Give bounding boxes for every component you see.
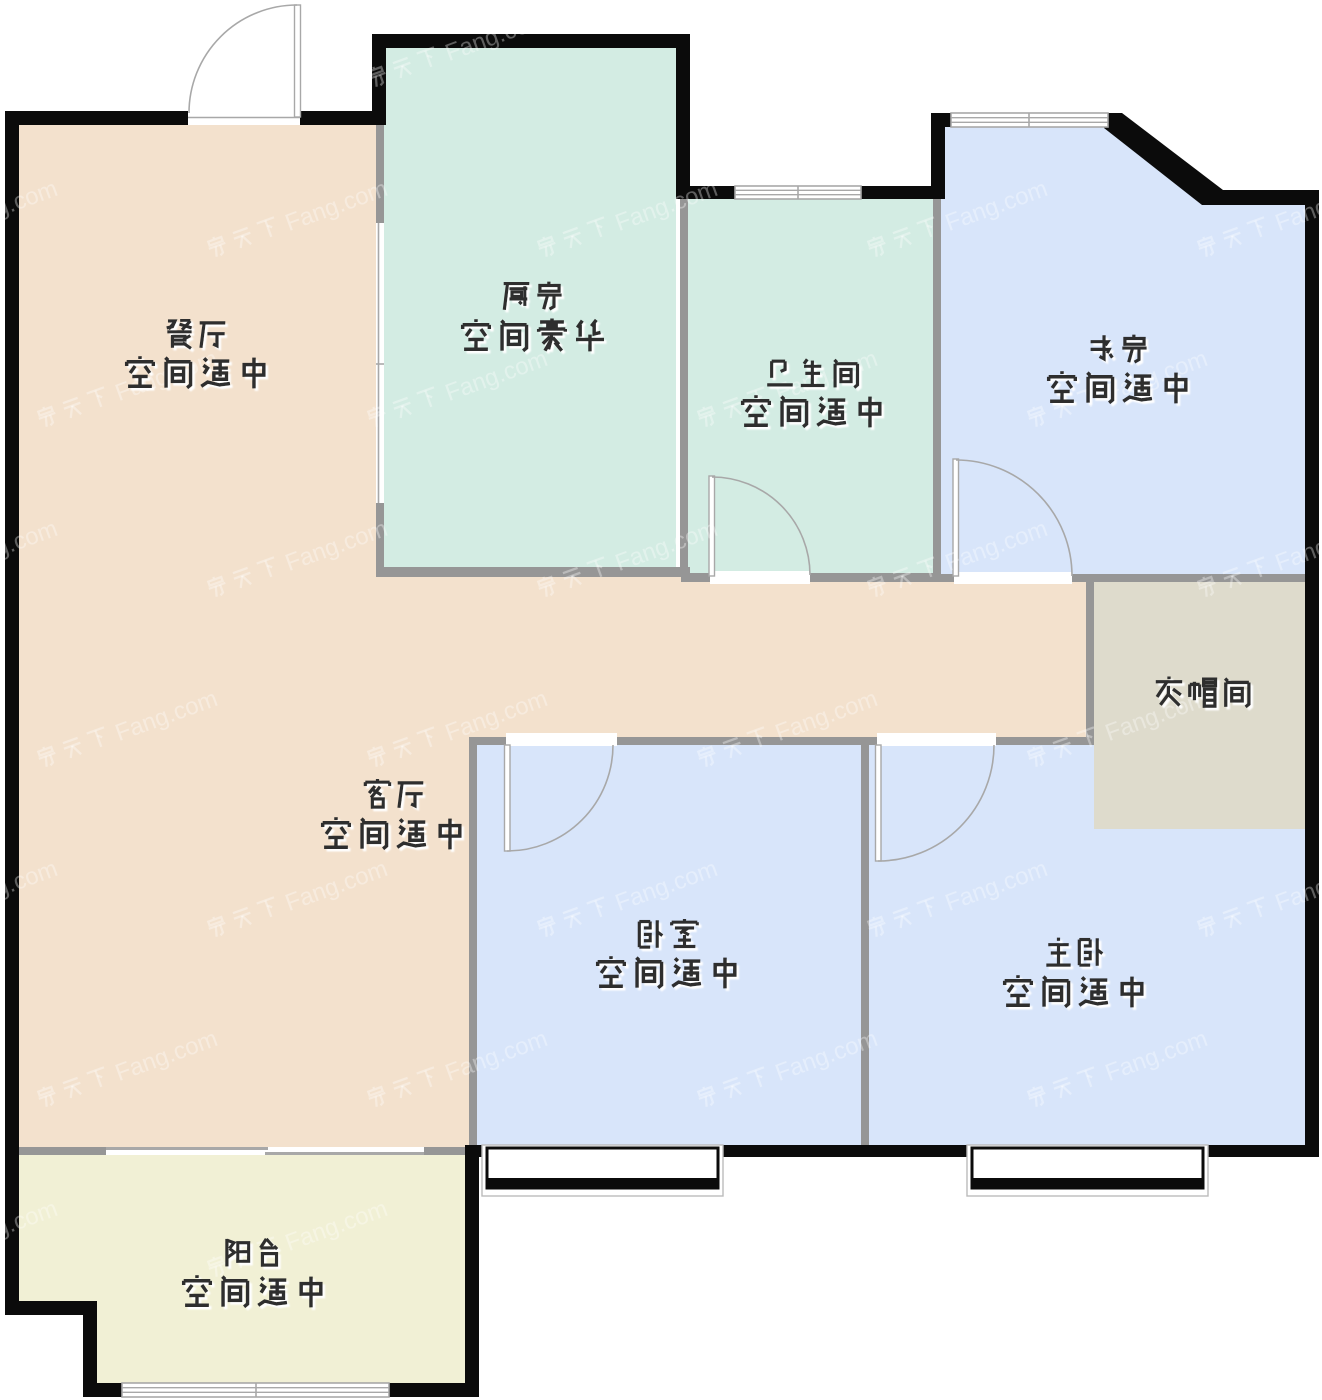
svg-text:Fang.com: Fang.com [942, 1195, 1052, 1257]
svg-text:Fang.com: Fang.com [772, 5, 882, 67]
svg-text:Fang.com: Fang.com [612, 1195, 722, 1257]
svg-text:Fang.com: Fang.com [1102, 5, 1212, 67]
svg-text:Fang.com: Fang.com [1272, 1195, 1322, 1257]
